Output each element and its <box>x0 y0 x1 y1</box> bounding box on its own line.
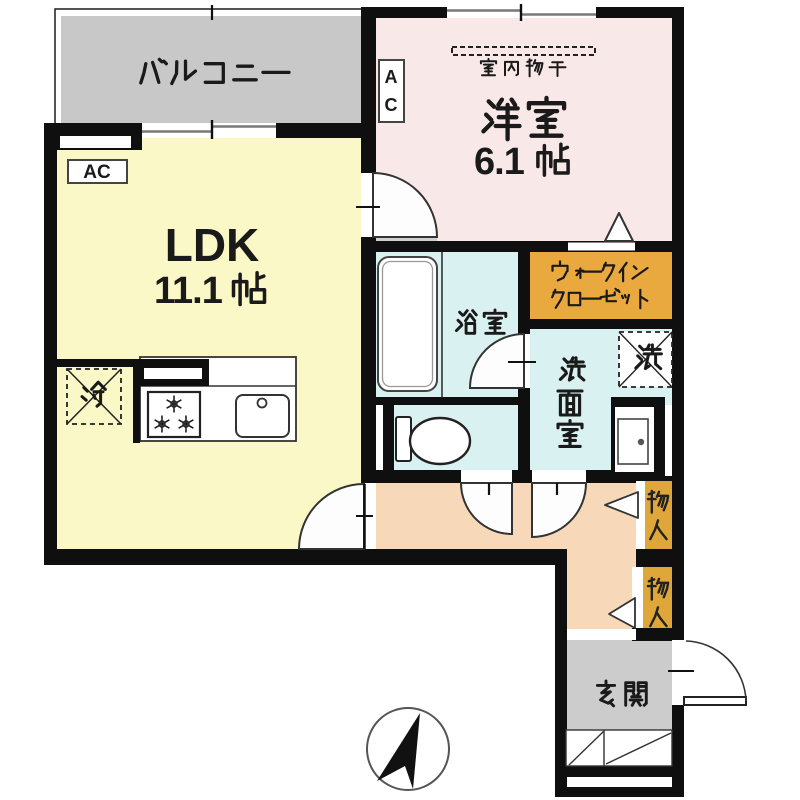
svg-text:6.1: 6.1 <box>474 141 525 183</box>
svg-text:C: C <box>385 95 398 115</box>
svg-text:11.1: 11.1 <box>154 270 223 312</box>
svg-text:LDK: LDK <box>165 219 260 271</box>
svg-text:A: A <box>385 67 398 87</box>
svg-text:AC: AC <box>83 162 111 183</box>
